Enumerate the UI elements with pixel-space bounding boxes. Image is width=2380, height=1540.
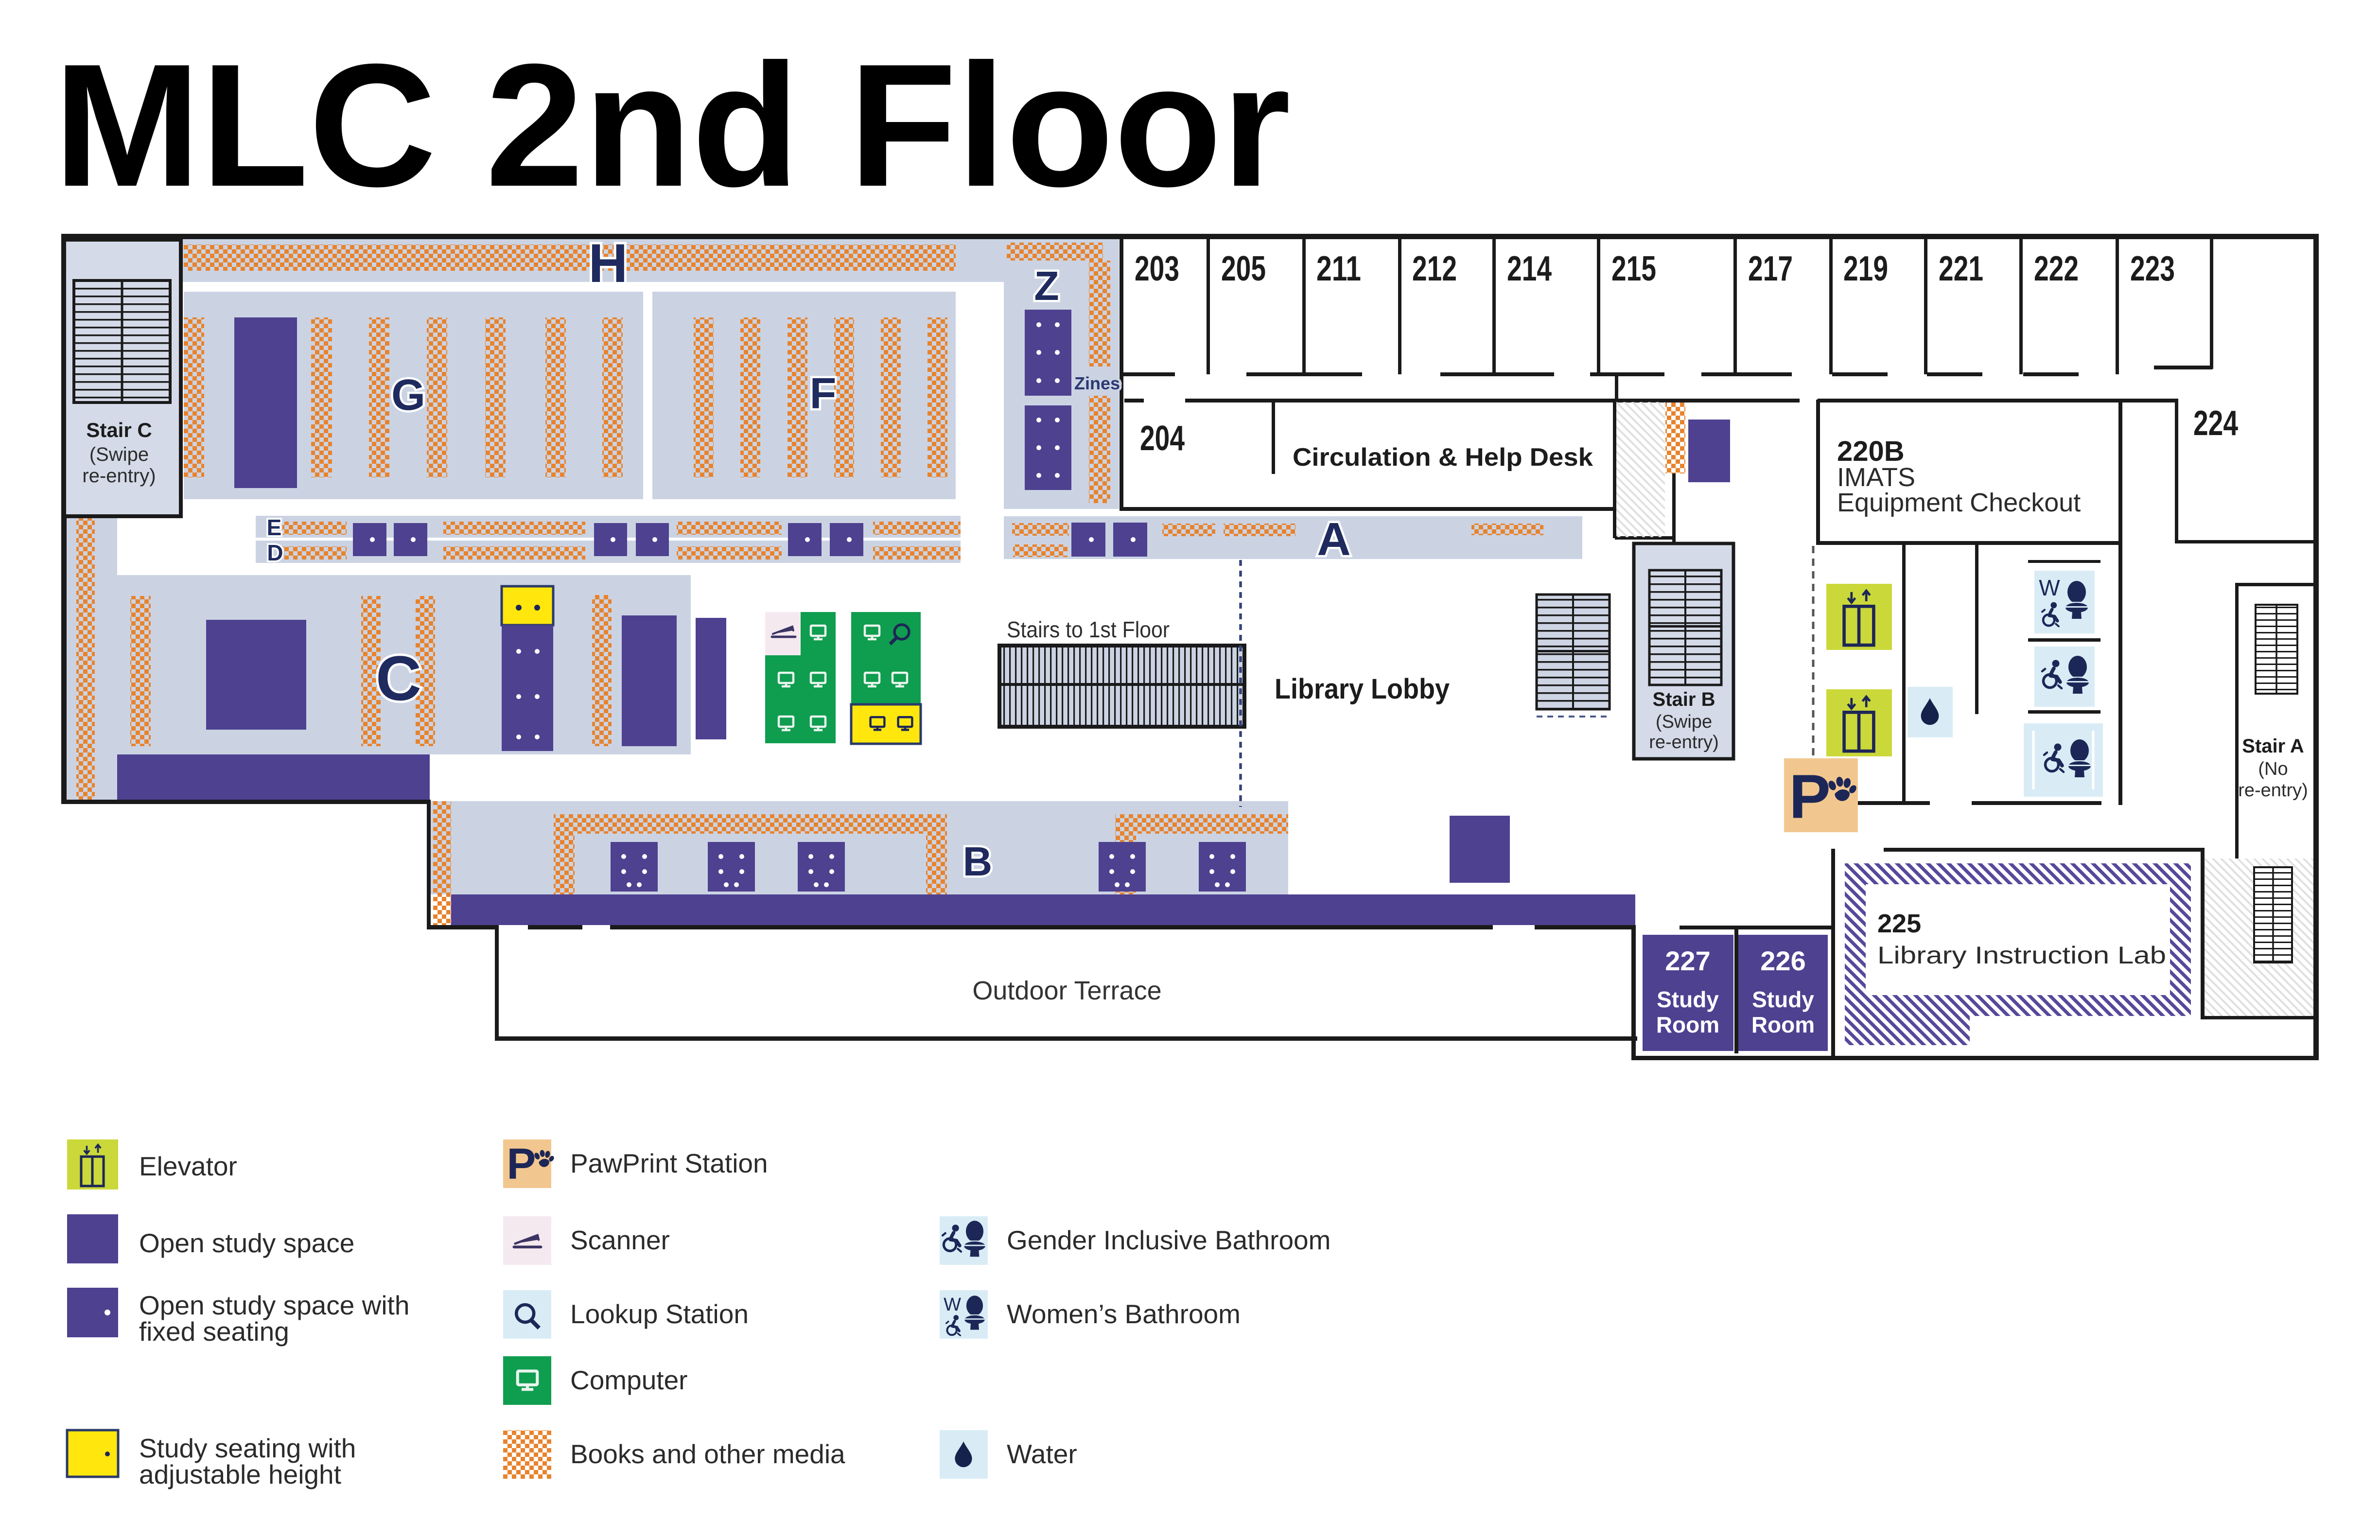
svg-text:Scanner: Scanner bbox=[570, 1225, 670, 1255]
svg-text:Computer: Computer bbox=[570, 1365, 687, 1395]
svg-text:Lookup Station: Lookup Station bbox=[570, 1299, 749, 1329]
svg-text:224: 224 bbox=[2193, 404, 2238, 443]
svg-text:Open study space: Open study space bbox=[139, 1228, 354, 1258]
svg-text:PawPrint Station: PawPrint Station bbox=[570, 1148, 768, 1178]
svg-text:Open study space with: Open study space with bbox=[139, 1290, 409, 1320]
svg-text:214: 214 bbox=[1507, 249, 1552, 288]
svg-text:Stair C: Stair C bbox=[86, 419, 152, 441]
svg-text:Room: Room bbox=[1656, 1012, 1719, 1037]
svg-text:re-entry): re-entry) bbox=[2238, 780, 2308, 801]
svg-text:225: 225 bbox=[1877, 909, 1921, 938]
svg-text:H: H bbox=[589, 233, 628, 294]
svg-text:Zines: Zines bbox=[1074, 373, 1120, 393]
svg-text:(Swipe: (Swipe bbox=[1656, 712, 1712, 732]
svg-text:W: W bbox=[944, 1295, 961, 1315]
svg-text:223: 223 bbox=[2130, 249, 2175, 288]
svg-text:Books and other media: Books and other media bbox=[570, 1439, 845, 1469]
svg-text:Z: Z bbox=[1034, 263, 1059, 309]
svg-text:A: A bbox=[1317, 513, 1350, 565]
svg-text:215: 215 bbox=[1611, 249, 1656, 288]
svg-text:adjustable height: adjustable height bbox=[139, 1459, 341, 1489]
svg-text:MLC 2nd Floor: MLC 2nd Floor bbox=[53, 28, 1291, 223]
svg-text:Stairs to 1st Floor: Stairs to 1st Floor bbox=[1007, 617, 1170, 642]
svg-text:211: 211 bbox=[1316, 249, 1361, 288]
svg-text:Stair A: Stair A bbox=[2242, 735, 2304, 757]
svg-text:Outdoor Terrace: Outdoor Terrace bbox=[972, 976, 1161, 1005]
svg-text:IMATS: IMATS bbox=[1837, 463, 1915, 492]
svg-text:219: 219 bbox=[1843, 249, 1888, 288]
svg-text:226: 226 bbox=[1760, 945, 1805, 976]
svg-text:(Swipe: (Swipe bbox=[89, 444, 149, 465]
svg-text:B: B bbox=[963, 839, 993, 884]
svg-text:227: 227 bbox=[1665, 945, 1710, 976]
svg-text:Elevator: Elevator bbox=[139, 1151, 237, 1181]
svg-text:re-entry): re-entry) bbox=[82, 465, 156, 487]
svg-text:Water: Water bbox=[1007, 1439, 1077, 1469]
svg-text:Stair B: Stair B bbox=[1653, 689, 1715, 710]
svg-text:Library Instruction Lab: Library Instruction Lab bbox=[1877, 942, 2166, 969]
svg-text:217: 217 bbox=[1748, 249, 1793, 288]
svg-text:G: G bbox=[391, 371, 425, 420]
svg-text:W: W bbox=[2039, 575, 2060, 600]
svg-text:212: 212 bbox=[1412, 249, 1457, 288]
svg-text:Women’s Bathroom: Women’s Bathroom bbox=[1007, 1299, 1241, 1329]
svg-text:Study: Study bbox=[1657, 987, 1719, 1012]
svg-text:D: D bbox=[267, 540, 283, 565]
svg-text:Gender Inclusive Bathroom: Gender Inclusive Bathroom bbox=[1007, 1225, 1330, 1255]
svg-text:re-entry): re-entry) bbox=[1649, 732, 1719, 752]
svg-text:Study: Study bbox=[1752, 987, 1814, 1012]
svg-text:F: F bbox=[810, 369, 837, 418]
svg-text:(No: (No bbox=[2258, 759, 2288, 779]
svg-text:Study seating with: Study seating with bbox=[139, 1433, 356, 1463]
svg-text:205: 205 bbox=[1221, 249, 1266, 288]
svg-text:221: 221 bbox=[1939, 249, 1983, 288]
svg-text:Library Lobby: Library Lobby bbox=[1275, 673, 1450, 705]
svg-text:E: E bbox=[267, 515, 282, 540]
svg-text:Circulation & Help Desk: Circulation & Help Desk bbox=[1293, 443, 1593, 472]
svg-text:fixed seating: fixed seating bbox=[139, 1316, 289, 1347]
svg-text:204: 204 bbox=[1140, 419, 1185, 458]
svg-text:C: C bbox=[376, 643, 421, 714]
svg-text:Equipment Checkout: Equipment Checkout bbox=[1837, 488, 2081, 517]
svg-text:203: 203 bbox=[1135, 249, 1179, 288]
svg-text:222: 222 bbox=[2034, 249, 2079, 288]
svg-text:Room: Room bbox=[1751, 1012, 1815, 1037]
